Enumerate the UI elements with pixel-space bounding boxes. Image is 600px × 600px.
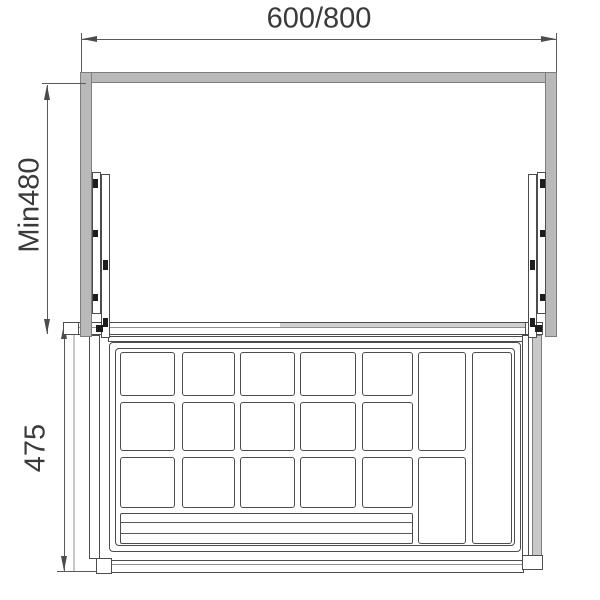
technical-drawing: 600/800 Min480 475 [0, 0, 600, 600]
width-dim-arrow-right-icon [541, 36, 556, 42]
slide-rail-right-inner [528, 174, 537, 338]
rail-mark [540, 294, 545, 301]
width-dimension-label: 600/800 [267, 3, 372, 36]
drawer-dim-arrow-down-icon [61, 556, 67, 571]
slide-rail-right-outer [537, 172, 546, 314]
depth-dim-arrow-up-icon [44, 85, 50, 100]
chassis-runner-right [532, 335, 542, 556]
drawer-top-rail-endcap-left [63, 322, 79, 335]
drawer-corner-block-bottom-right [522, 555, 543, 570]
depth-dim-arrow-down-icon [44, 319, 50, 334]
slide-rail-left-outer [92, 172, 101, 314]
depth-dim-line [47, 85, 48, 334]
tray-strip-line [121, 533, 412, 534]
cabinet-left-wall [80, 72, 92, 337]
rail-mark [96, 325, 103, 332]
basket-inner-frame [115, 348, 515, 546]
rail-mark [540, 230, 545, 237]
rail-mark [535, 325, 542, 332]
rail-mark [540, 179, 545, 188]
rail-mark [103, 260, 108, 270]
drawer-corner-block-bottom-left [96, 558, 112, 574]
chassis-side-right [522, 335, 529, 556]
drawer-top-rail-inner-line [64, 327, 542, 328]
rail-mark [93, 294, 98, 301]
rail-mark [103, 318, 108, 327]
tray-strip-line [121, 522, 412, 523]
rail-mark [530, 260, 535, 270]
width-dim-extension-right [556, 33, 557, 72]
drawer-depth-dimension-label: 475 [20, 424, 53, 472]
rail-mark [93, 179, 98, 188]
rail-mark [93, 230, 98, 237]
travel-projection-line [73, 335, 75, 571]
slide-rail-left-inner [101, 174, 110, 338]
drawer-bottom-rail [107, 560, 524, 573]
depth-dim-extension-top [42, 83, 86, 84]
drawer-dim-line [64, 324, 65, 571]
depth-dimension-label: Min480 [14, 157, 47, 252]
drawer-bottom-rail-inner-line [108, 564, 523, 565]
cabinet-top-panel [80, 72, 557, 83]
width-dim-arrow-left-icon [82, 36, 97, 42]
chassis-side-left [89, 335, 100, 559]
cabinet-right-wall [545, 72, 557, 337]
width-dim-line [82, 39, 556, 40]
